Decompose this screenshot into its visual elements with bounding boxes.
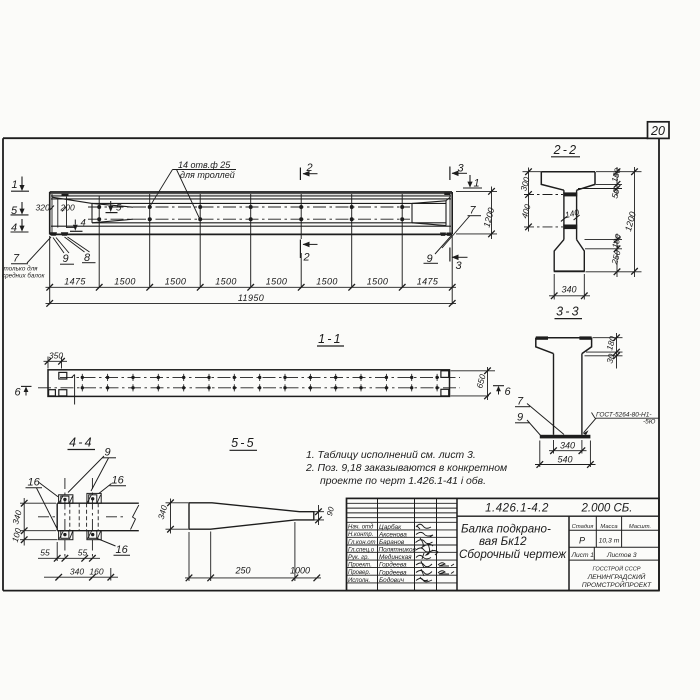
svg-text:Гордеева: Гордеева	[379, 561, 407, 569]
svg-text:1500: 1500	[367, 277, 389, 287]
svg-text:для троллей: для троллей	[180, 170, 235, 180]
svg-text:7: 7	[13, 253, 20, 265]
svg-text:Баранов: Баранов	[379, 539, 405, 546]
svg-text:Исполн.: Исполн.	[348, 578, 370, 584]
svg-text:Мединская: Мединская	[379, 553, 412, 561]
svg-text:Листов 3: Листов 3	[606, 552, 637, 559]
svg-text:1000: 1000	[290, 566, 310, 576]
svg-text:320: 320	[36, 203, 50, 213]
svg-text:Лист 1: Лист 1	[571, 552, 595, 559]
svg-text:5-5: 5-5	[231, 436, 256, 450]
svg-text:55: 55	[78, 548, 88, 558]
svg-text:Аксенова: Аксенова	[378, 531, 407, 538]
svg-text:Нач. отд: Нач. отд	[348, 525, 374, 531]
svg-text:1. Таблицу исполнений см. лис: 1. Таблицу исполнений см. лист 3.	[306, 449, 476, 461]
svg-text:540: 540	[557, 454, 572, 464]
svg-text:1475: 1475	[64, 277, 86, 287]
svg-text:340: 340	[70, 567, 84, 577]
svg-text:ГОССТРОЙ СССР: ГОССТРОЙ СССР	[592, 565, 640, 573]
svg-text:5: 5	[116, 203, 122, 214]
svg-text:Стадия: Стадия	[572, 524, 594, 530]
svg-text:2. Поз. 9,18 заказываются в ко: 2. Поз. 9,18 заказываются в конкретном	[305, 463, 507, 474]
svg-text:340: 340	[560, 441, 575, 451]
svg-text:ГОСТ-5264-80-Н1-: ГОСТ-5264-80-Н1-	[596, 412, 652, 419]
svg-text:4: 4	[81, 218, 86, 229]
svg-text:9: 9	[105, 447, 111, 459]
svg-text:4-4: 4-4	[69, 436, 94, 450]
svg-text:Царбак: Царбак	[379, 523, 402, 531]
svg-text:160: 160	[89, 567, 103, 577]
svg-text:16: 16	[28, 477, 41, 489]
svg-text:Н.контр.: Н.контр.	[348, 532, 373, 538]
svg-text:350: 350	[49, 351, 63, 361]
svg-text:11950: 11950	[238, 293, 264, 303]
svg-text:1500: 1500	[316, 277, 338, 287]
svg-text:Провер.: Провер.	[348, 570, 370, 576]
svg-text:2-2: 2-2	[553, 143, 579, 157]
svg-text:Гордеева: Гордеева	[379, 568, 407, 576]
svg-text:1500: 1500	[114, 277, 136, 287]
svg-text:16: 16	[112, 475, 125, 487]
svg-text:250: 250	[234, 566, 250, 576]
svg-text:ПРОМСТРОЙПРОЕКТ: ПРОМСТРОЙПРОЕКТ	[582, 580, 652, 589]
svg-text:1-1: 1-1	[318, 332, 343, 346]
svg-text:Бодович: Бодович	[379, 576, 405, 584]
svg-text:Масшт.: Масшт.	[629, 524, 651, 530]
svg-text:Р: Р	[579, 536, 585, 546]
svg-text:14 отв.ф 25: 14 отв.ф 25	[178, 160, 231, 170]
svg-text:1500: 1500	[266, 277, 288, 287]
svg-text:6: 6	[505, 386, 512, 398]
svg-text:1475: 1475	[417, 277, 439, 287]
svg-text:Балка подкрано-: Балка подкрано-	[461, 523, 551, 536]
svg-text:средних балок: средних балок	[2, 272, 45, 280]
svg-text:9: 9	[63, 253, 69, 265]
svg-text:Масса: Масса	[600, 524, 618, 530]
svg-text:Гл.кон.от: Гл.кон.от	[348, 540, 376, 546]
svg-text:10,3 т: 10,3 т	[599, 538, 620, 545]
svg-text:3: 3	[456, 260, 463, 272]
svg-text:7: 7	[470, 205, 477, 217]
svg-text:Сборочный чертеж: Сборочный чертеж	[459, 548, 567, 561]
svg-text:Полятников: Полятников	[379, 547, 417, 554]
svg-text:9: 9	[517, 412, 523, 424]
svg-text:1500: 1500	[165, 277, 187, 287]
svg-text:1: 1	[12, 179, 18, 191]
svg-text:-5Ю: -5Ю	[643, 419, 656, 426]
svg-text:1500: 1500	[215, 277, 237, 287]
svg-text:Проект.: Проект.	[348, 562, 372, 568]
svg-text:ЛЕНИНГРАДСКИЙ: ЛЕНИНГРАДСКИЙ	[587, 572, 646, 581]
svg-text:2: 2	[303, 252, 310, 264]
svg-text:проекте по черт 1.426.1-41 і о: проекте по черт 1.426.1-41 і обв.	[320, 475, 486, 487]
svg-text:340: 340	[561, 285, 576, 295]
svg-text:1.426.1-4.2: 1.426.1-4.2	[485, 503, 549, 515]
svg-text:только для: только для	[4, 265, 39, 273]
svg-text:6: 6	[15, 387, 22, 399]
svg-text:3-3: 3-3	[556, 305, 581, 319]
svg-text:7: 7	[517, 396, 524, 408]
svg-text:3: 3	[458, 163, 465, 175]
svg-text:16: 16	[116, 544, 129, 556]
svg-text:20: 20	[650, 124, 665, 138]
svg-text:55: 55	[40, 548, 50, 558]
svg-text:2.000 СБ.: 2.000 СБ.	[581, 503, 633, 515]
svg-text:Рук. гр.: Рук. гр.	[348, 555, 369, 561]
svg-text:Гл.спец.о: Гл.спец.о	[348, 547, 375, 553]
svg-text:вая Бк12: вая Бк12	[479, 535, 527, 548]
